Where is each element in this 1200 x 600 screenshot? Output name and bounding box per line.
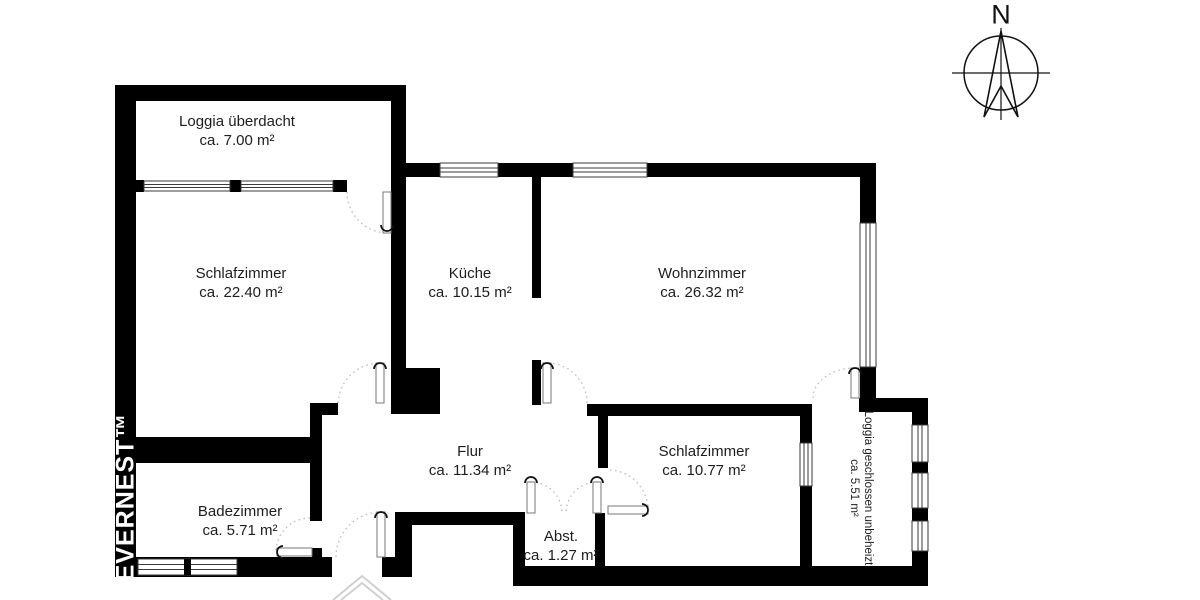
room-area: ca. 10.15 m² [428,283,511,302]
room-area: ca. 22.40 m² [196,283,287,302]
entrance-chevron [333,576,391,600]
door-leaves [277,192,859,557]
room-name: Küche [428,264,511,283]
room-label-loggia-closed: Loggia geschlossen unbeheizt ca. 5.51 m² [847,411,875,566]
room-label-bedroom-2: Schlafzimmer ca. 10.77 m² [659,442,750,480]
room-area: ca. 10.77 m² [659,461,750,480]
door-leaf-storage-left [527,482,535,513]
window-living-top [573,163,647,177]
door-leaf-living-loggia [851,368,859,398]
room-area: ca. 26.32 m² [658,283,746,302]
room-area: ca. 5.71 m² [198,521,282,540]
room-label-living-room: Wohnzimmer ca. 26.32 m² [658,264,746,302]
compass-north-label: N [991,0,1011,31]
room-name: Schlafzimmer [659,442,750,461]
room-name: Loggia überdacht [179,112,295,131]
door-leaf-hall-living [543,363,551,403]
room-label-kitchen: Küche ca. 10.15 m² [428,264,511,302]
room-area: ca. 1.27 m² [523,546,598,565]
door-leaf-hall-bedroom2 [608,506,648,514]
room-name: Abst. [523,527,598,546]
room-label-storage: Abst. ca. 1.27 m² [523,527,598,565]
room-name: Wohnzimmer [658,264,746,283]
floor-plan-drawing [0,0,1200,600]
room-name: Loggia geschlossen unbeheizt [861,411,875,566]
room-name: Badezimmer [198,502,282,521]
compass-rose [952,28,1050,120]
door-leaf-storage-right [593,482,601,513]
room-name: Schlafzimmer [196,264,287,283]
door-handles [277,225,861,558]
room-name: Flur [429,442,511,461]
windows-loggia-closed-right [912,425,928,551]
window-bedroom2-loggia [800,443,812,486]
floor-plan: Loggia überdacht ca. 7.00 m² Schlafzimme… [0,0,1200,600]
window-kitchen-top [440,163,498,177]
room-area: ca. 5.51 m² [847,411,861,566]
room-label-loggia-covered: Loggia überdacht ca. 7.00 m² [179,112,295,150]
door-leaf-bedroom1-loggia [383,192,391,233]
room-label-bathroom: Badezimmer ca. 5.71 m² [198,502,282,540]
door-arc-entrance [336,512,381,557]
window-living-right [860,223,876,367]
door-arc-storage-left [531,482,562,513]
door-leaf-bedroom1-hall [376,363,384,403]
window-bathroom-bottom [138,559,237,575]
door-arc-storage-right [566,482,597,513]
room-area: ca. 7.00 m² [179,131,295,150]
door-arcs [276,192,855,557]
watermark-logo: EVERNEST™ [112,413,141,582]
door-leaf-entrance [377,512,385,557]
room-label-bedroom-1: Schlafzimmer ca. 22.40 m² [196,264,287,302]
room-label-hallway: Flur ca. 11.34 m² [429,442,511,480]
door-leaf-bathroom [277,548,312,556]
room-area: ca. 11.34 m² [429,461,511,480]
